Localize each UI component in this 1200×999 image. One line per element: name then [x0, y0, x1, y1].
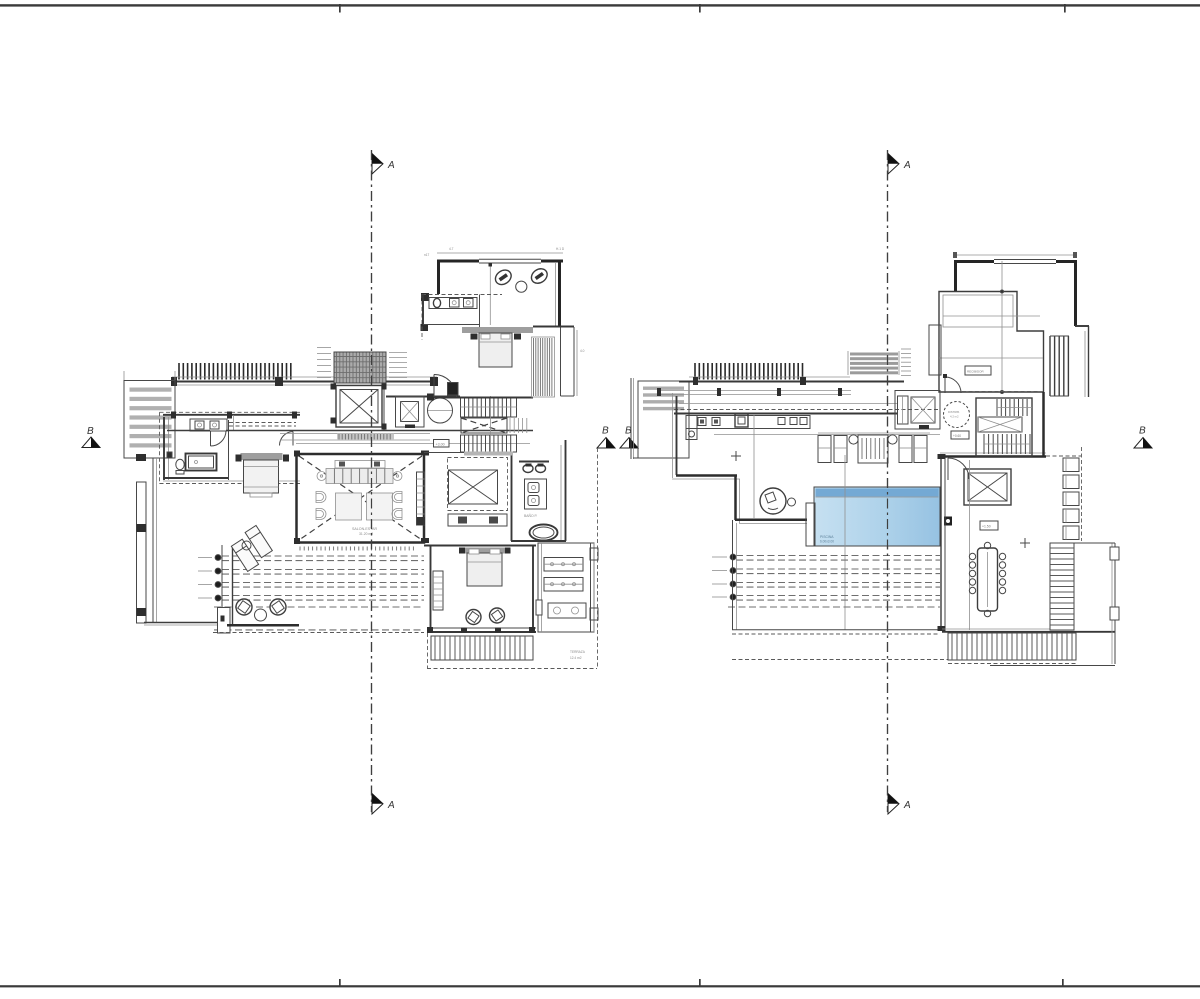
svg-text:SALON-ESTAR: SALON-ESTAR [352, 527, 377, 531]
svg-text:H.1 D: H.1 D [556, 247, 565, 251]
svg-text:B: B [1139, 426, 1146, 437]
svg-text:12.4 m2: 12.4 m2 [570, 656, 582, 660]
svg-text:+3.00: +3.00 [436, 443, 445, 447]
svg-text:TERRAZA: TERRAZA [570, 650, 586, 654]
svg-text:B: B [87, 426, 94, 437]
svg-text:A: A [903, 160, 911, 171]
svg-text:BAÑO P.: BAÑO P. [524, 513, 538, 518]
svg-text:B: B [602, 426, 609, 437]
svg-text:RECIBIDOR: RECIBIDOR [967, 370, 985, 374]
svg-text:n17: n17 [424, 253, 430, 257]
svg-text:A: A [387, 800, 395, 811]
svg-text:PISCINA: PISCINA [820, 535, 834, 539]
svg-text:4.0: 4.0 [580, 349, 585, 353]
svg-text:+0.60: +0.60 [953, 434, 961, 438]
svg-text:A: A [903, 800, 911, 811]
svg-text:+1.50: +1.50 [982, 525, 991, 529]
svg-text:A: A [387, 160, 395, 171]
svg-text:4.2 m2: 4.2 m2 [950, 415, 959, 419]
svg-text:DISTRIB.: DISTRIB. [948, 410, 960, 414]
svg-text:4.7: 4.7 [449, 247, 454, 251]
svg-text:6.00x3.00: 6.00x3.00 [820, 540, 834, 544]
